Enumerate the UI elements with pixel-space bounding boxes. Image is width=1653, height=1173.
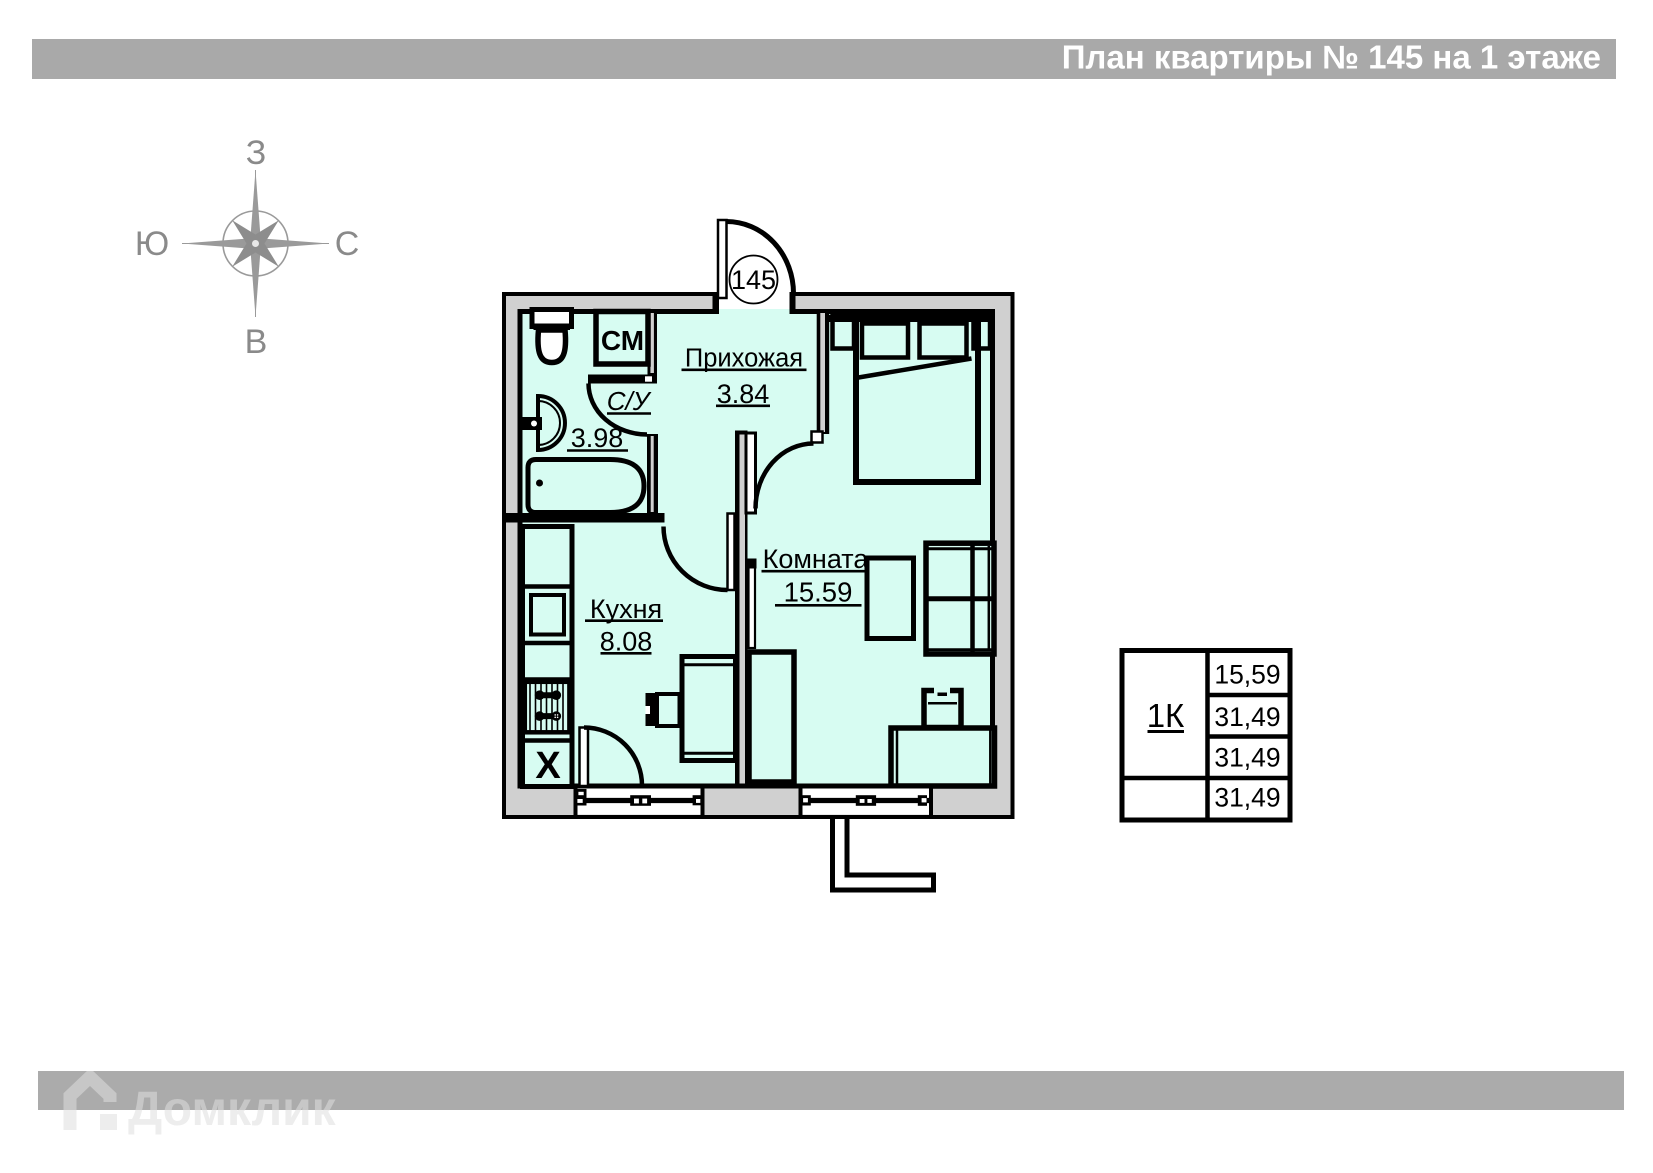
svg-text:31,49: 31,49 <box>1214 702 1280 732</box>
svg-text:С: С <box>335 225 360 263</box>
svg-text:Комната: Комната <box>763 544 870 574</box>
svg-text:С/У: С/У <box>607 386 652 416</box>
svg-text:3.98: 3.98 <box>571 423 624 453</box>
svg-text:З: З <box>246 134 267 172</box>
svg-text:СМ: СМ <box>601 325 644 356</box>
svg-text:15,59: 15,59 <box>1214 660 1280 690</box>
svg-text:Ю: Ю <box>135 225 169 263</box>
svg-text:Прихожая: Прихожая <box>685 345 803 373</box>
svg-text:План квартиры № 145 на 1 этаже: План квартиры № 145 на 1 этаже <box>1062 39 1601 76</box>
svg-text:31,49: 31,49 <box>1214 783 1280 813</box>
svg-text:31,49: 31,49 <box>1214 743 1280 773</box>
svg-text:15.59: 15.59 <box>784 577 853 608</box>
svg-text:1К: 1К <box>1147 697 1185 734</box>
svg-text:145: 145 <box>731 265 776 295</box>
svg-text:X: X <box>535 745 561 787</box>
svg-text:В: В <box>245 323 268 361</box>
